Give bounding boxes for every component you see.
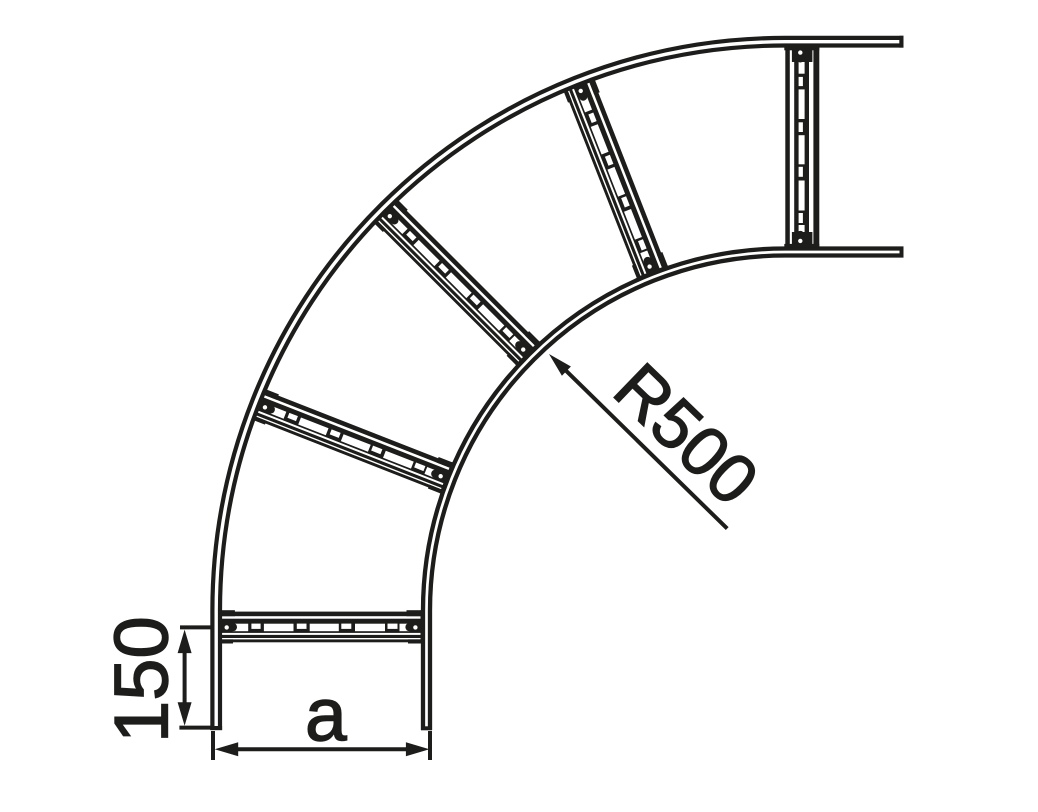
svg-text:R500: R500 <box>600 348 774 520</box>
svg-text:150: 150 <box>100 616 185 743</box>
svg-text:a: a <box>305 673 347 757</box>
